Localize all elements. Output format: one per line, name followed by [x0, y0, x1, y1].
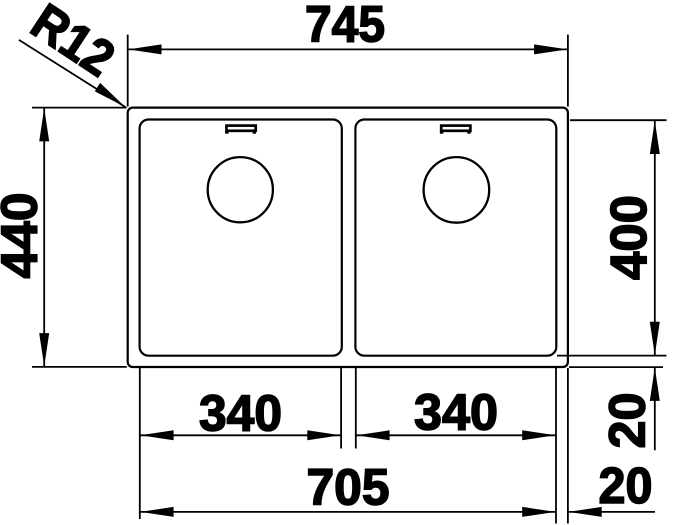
svg-text:340: 340 [199, 385, 282, 442]
svg-text:745: 745 [305, 0, 385, 53]
svg-text:705: 705 [307, 459, 390, 516]
svg-text:340: 340 [414, 384, 498, 441]
svg-text:20: 20 [599, 393, 656, 449]
svg-text:20: 20 [599, 457, 653, 514]
svg-text:440: 440 [0, 193, 48, 279]
svg-text:400: 400 [600, 195, 657, 280]
